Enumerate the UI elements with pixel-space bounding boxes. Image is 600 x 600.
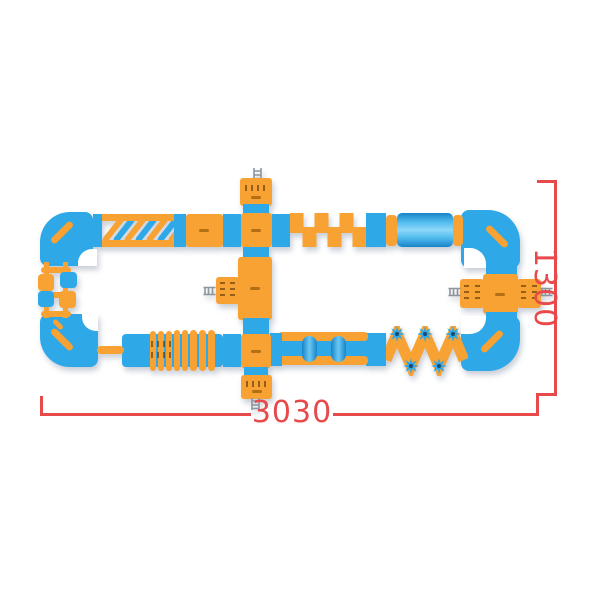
connector: [93, 214, 102, 247]
accordion-rib: [199, 330, 206, 371]
thin-connector: [97, 346, 124, 354]
accordion-dots: [151, 352, 175, 358]
orange-mat: [186, 214, 223, 247]
roller-cylinder: [397, 213, 453, 247]
center-platform: [238, 257, 272, 320]
dimension-width-line-right: [333, 413, 538, 416]
cylinder-end-cap: [453, 215, 463, 246]
bridge-roller: [302, 336, 317, 362]
connector: [223, 334, 241, 367]
dimension-width-line-left: [40, 413, 251, 416]
dimension-width-tick-left: [40, 396, 43, 416]
stepping-block-blue: [60, 272, 77, 288]
connector: [272, 214, 290, 247]
dimension-height-tick-top: [537, 180, 557, 183]
diag-rail-bottom: [102, 240, 174, 247]
accordion-rib: [174, 330, 180, 371]
connector: [486, 312, 517, 324]
connector: [223, 214, 241, 247]
accordion-rib: [166, 331, 172, 371]
right-junction: [483, 274, 518, 314]
dimension-width-label: 3030: [251, 396, 333, 430]
connector-block: [366, 213, 386, 247]
right-junction-left-platform: [460, 279, 484, 308]
spike-zigzag-obstacle: [383, 326, 468, 376]
castellated-obstacle: [290, 213, 366, 247]
dimension-height-label: 1300: [527, 246, 561, 330]
diag-rail-top: [102, 214, 174, 221]
diagonal-bars-obstacle: [102, 214, 174, 247]
accordion-rib: [158, 331, 164, 371]
ladder-icon: [203, 285, 217, 298]
roller-bridge-rail: [278, 356, 368, 365]
water-park-diagram: 3030 1300: [0, 0, 600, 600]
roller-bridge-rail: [278, 332, 368, 341]
stepping-block-orange: [38, 274, 54, 291]
entry-platform-top: [240, 178, 272, 206]
ladder-icon: [448, 286, 462, 299]
left-ladder-rung: [41, 311, 71, 317]
accordion-rib: [190, 330, 197, 371]
bridge-roller: [331, 336, 346, 362]
dimension-height-step-v: [536, 393, 539, 416]
center-side-platform: [216, 277, 239, 304]
top-cross-junction: [241, 213, 272, 247]
bottom-junction: [241, 334, 271, 368]
cylinder-end-cap: [386, 215, 397, 246]
stepping-block-blue: [38, 291, 54, 307]
connector: [270, 333, 282, 366]
accordion-dots: [151, 341, 175, 347]
dimension-height-step-h: [537, 393, 557, 396]
accordion-rib: [208, 330, 215, 371]
connector: [174, 214, 186, 247]
stepping-block-orange: [59, 291, 76, 308]
accordion-rib: [150, 331, 156, 371]
inflatable-structure: [0, 0, 600, 600]
accordion-rib: [182, 330, 188, 371]
connector: [366, 333, 386, 366]
